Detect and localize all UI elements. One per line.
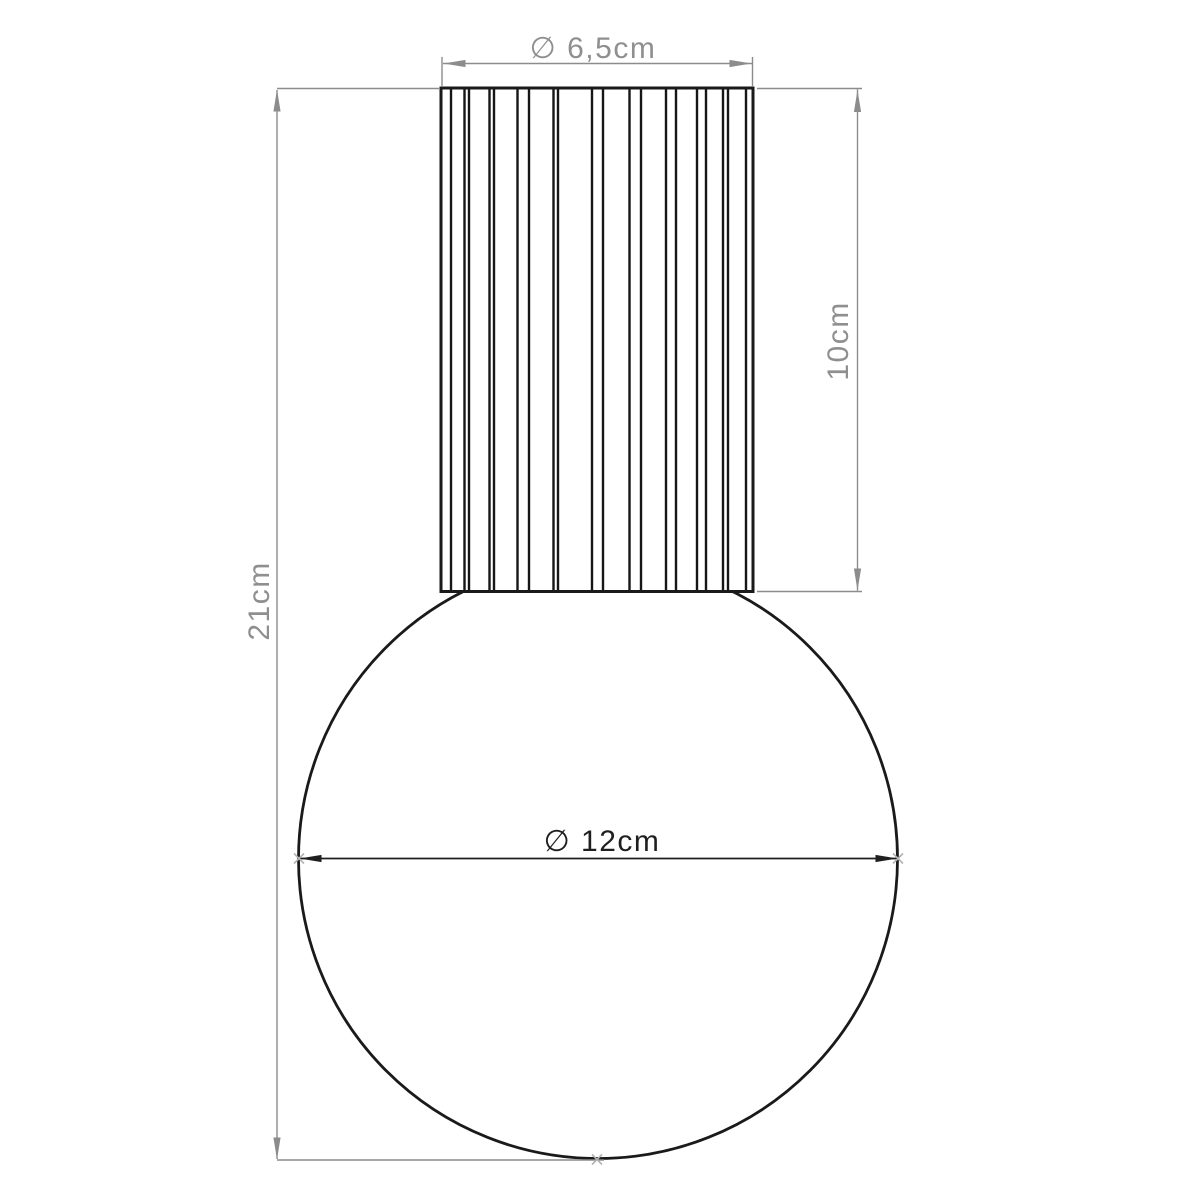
lamp-outline bbox=[299, 88, 898, 1159]
dim-fitting-diameter: ∅ 6,5cm bbox=[442, 32, 753, 86]
arrow-up-icon bbox=[273, 90, 280, 112]
arrow-right-icon bbox=[730, 60, 752, 67]
lamp-dimension-drawing: ∅ 6,5cm 10cm 21cm ∅ 12cm bbox=[0, 0, 1200, 1200]
total-height-label: 21cm bbox=[243, 561, 276, 640]
globe-diameter-label: ∅ 12cm bbox=[544, 825, 661, 858]
arrow-left-icon bbox=[444, 60, 466, 67]
fitting-diameter-label: ∅ 6,5cm bbox=[530, 32, 657, 65]
dim-fitting-height: 10cm bbox=[757, 89, 862, 592]
arrow-down-icon bbox=[854, 569, 861, 591]
arrow-down-icon bbox=[273, 1138, 280, 1160]
arrow-up-icon bbox=[854, 90, 861, 112]
drawing-canvas: ∅ 6,5cm 10cm 21cm ∅ 12cm bbox=[0, 0, 1200, 1200]
fitting-height-label: 10cm bbox=[822, 301, 855, 380]
